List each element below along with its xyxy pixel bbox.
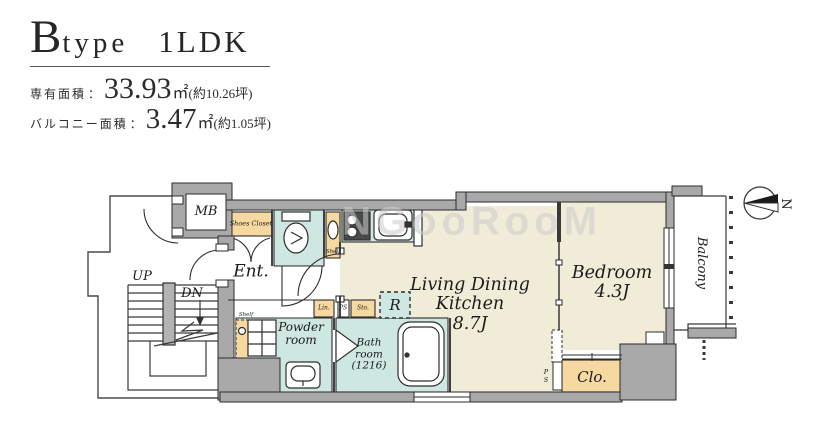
- closet-box: [562, 360, 622, 392]
- washer-shelf-strip: [236, 320, 248, 358]
- mb-room: [186, 194, 226, 230]
- low-window: [646, 332, 664, 344]
- shoes-cabinet-arc: [251, 238, 270, 262]
- toilet-bowl: [284, 223, 308, 253]
- entrance-door-arc: [190, 250, 220, 280]
- north-compass: [744, 187, 778, 219]
- top-wall-right: [456, 192, 674, 202]
- floor-plan-page: Btype 1LDK 専有面積 ： 33.93 ㎡ (約10.26坪) バルコニ…: [0, 0, 820, 440]
- toilet-tank: [282, 212, 310, 221]
- storage-box: [351, 300, 375, 317]
- shoes-cabinet-arc: [232, 238, 251, 262]
- pipe-space-column: [552, 330, 562, 362]
- balcony-structure: [674, 196, 736, 360]
- shoes-closet-box: [230, 212, 272, 236]
- linen-box: [314, 300, 334, 317]
- refrigerator-space: [380, 292, 410, 318]
- stairs: [128, 283, 230, 390]
- top-wall: [226, 200, 460, 210]
- washer-tap: [239, 328, 246, 335]
- shelf-basin: [328, 221, 338, 239]
- floor-plan-drawing: [0, 0, 820, 440]
- right-wall-upper: [666, 192, 674, 230]
- bottom-right-wall-block: [620, 344, 676, 400]
- balcony-wall-stub: [672, 186, 702, 196]
